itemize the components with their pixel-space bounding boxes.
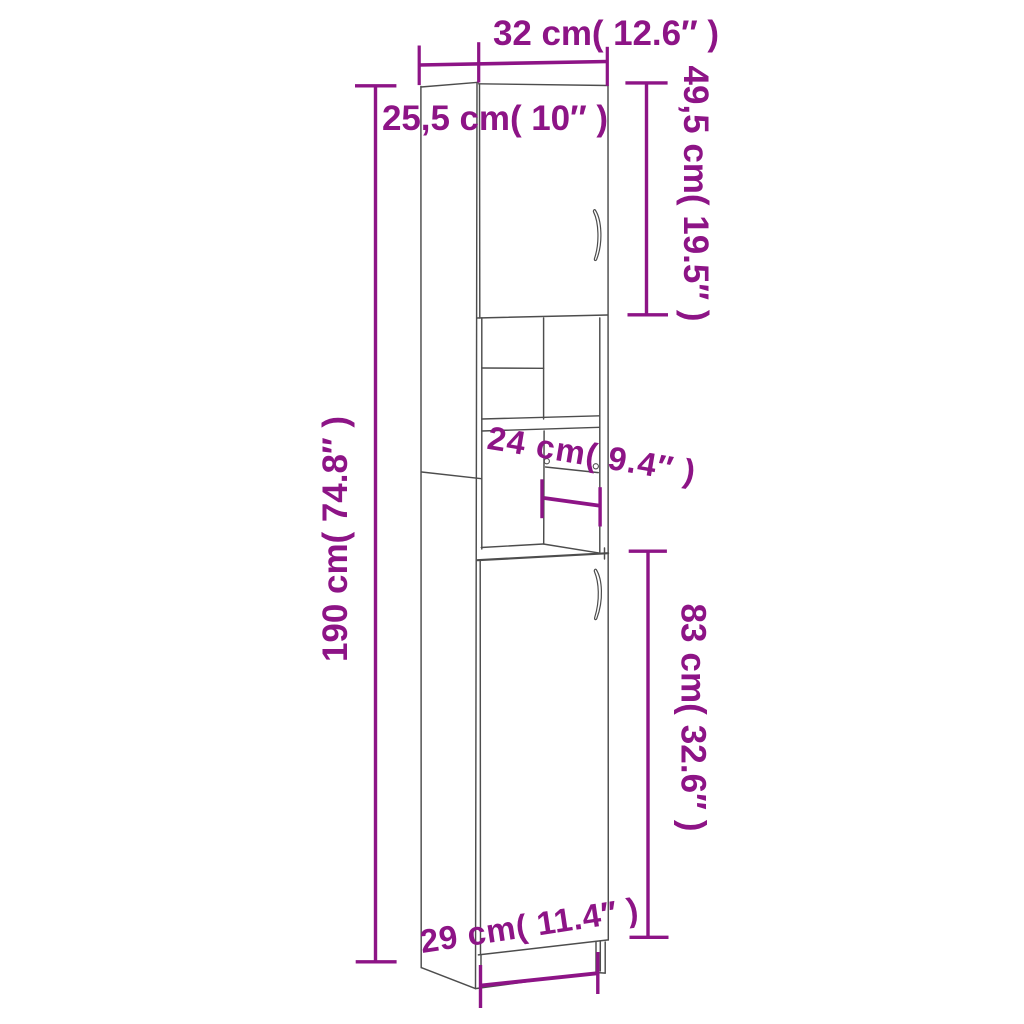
svg-text:25,5 cm( 10″ ): 25,5 cm( 10″ )	[382, 99, 608, 138]
svg-text:190 cm( 74.8″ ): 190 cm( 74.8″ )	[316, 416, 355, 662]
svg-text:49,5 cm( 19.5″ ): 49,5 cm( 19.5″ )	[676, 66, 715, 322]
svg-text:83 cm( 32.6″ ): 83 cm( 32.6″ )	[674, 604, 713, 832]
svg-text:32 cm( 12.6″ ): 32 cm( 12.6″ )	[493, 14, 719, 53]
